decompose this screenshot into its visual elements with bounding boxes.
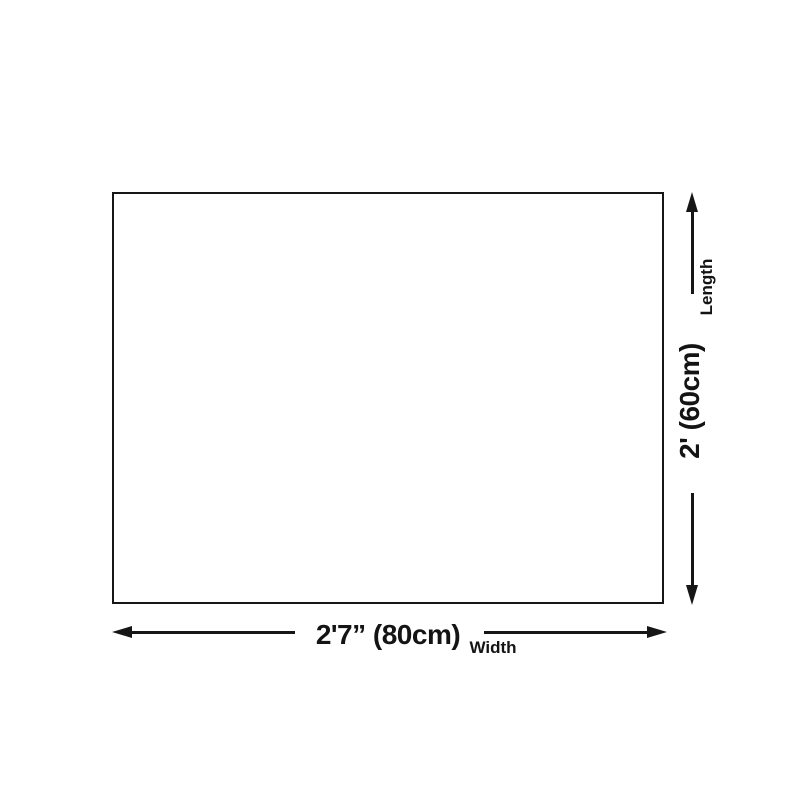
arrow-down-icon bbox=[686, 585, 698, 605]
arrow-up-icon bbox=[686, 192, 698, 212]
length-dimension-value: 2' (60cm) bbox=[674, 343, 706, 459]
product-outline bbox=[112, 192, 664, 604]
arrow-right-icon bbox=[647, 626, 667, 638]
width-dimension-label: Width bbox=[469, 638, 516, 658]
length-arrow-line-bottom bbox=[691, 493, 694, 587]
arrow-left-icon bbox=[112, 626, 132, 638]
width-arrow-line-left bbox=[128, 631, 295, 634]
length-arrow-line-top bbox=[691, 210, 694, 294]
width-arrow-line-right bbox=[484, 631, 649, 634]
width-dimension-value: 2'7” (80cm) bbox=[316, 619, 460, 651]
length-dimension-label: Length bbox=[697, 259, 717, 316]
size-diagram: 2'7” (80cm) Width 2' (60cm) Length bbox=[0, 0, 800, 800]
